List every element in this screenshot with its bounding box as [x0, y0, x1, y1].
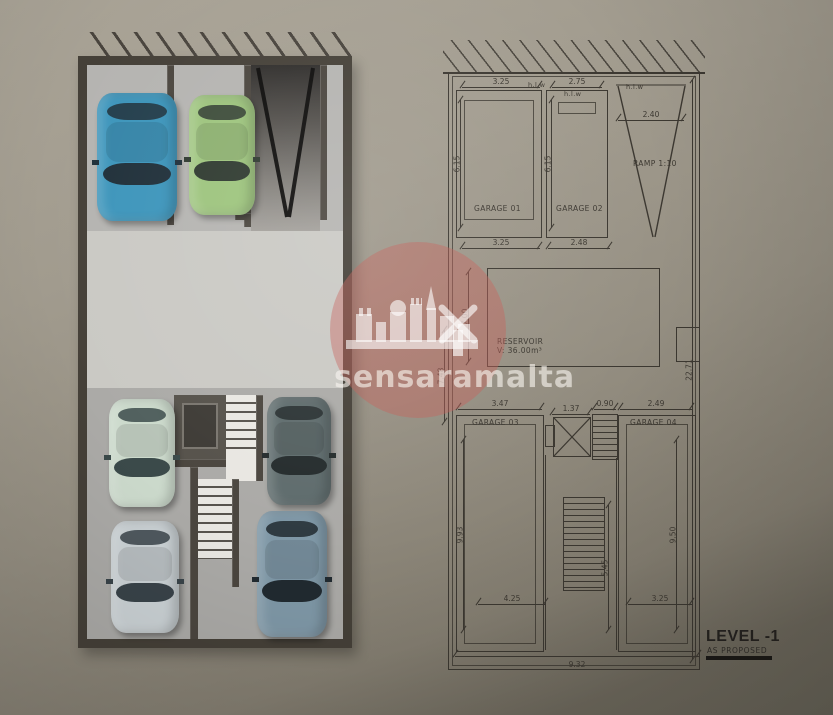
site-boundary-hatch-right	[443, 40, 705, 74]
car-mirror-right	[177, 579, 184, 584]
car-windshield	[271, 456, 326, 474]
title-underline	[706, 656, 772, 660]
garage-03-label: GARAGE 03	[472, 419, 519, 428]
dim-ramp-width: 2.40	[618, 120, 684, 121]
car-pale-green	[109, 399, 175, 507]
dim-reservoir-depth: 7.00	[468, 272, 469, 362]
car-rear-glass	[120, 530, 170, 545]
dim-bottom-left: 4.25	[478, 604, 546, 605]
car-roof	[116, 424, 168, 457]
dim-garage01-depth: 6.15	[460, 100, 461, 228]
lift-shaft-plan	[553, 417, 591, 457]
lift-cross-icon	[554, 418, 590, 456]
ramp-direction-lines	[251, 65, 320, 231]
car-windshield	[194, 161, 251, 181]
stair-upper-plan	[592, 414, 618, 460]
car-mirror-left	[262, 453, 269, 458]
lift-door-plan	[545, 425, 555, 447]
side-niche	[676, 327, 700, 362]
vehicle-ramp	[251, 65, 320, 231]
stall-outline-garage-03	[464, 424, 536, 644]
car-rear-glass	[118, 408, 167, 422]
corridor-wall-left	[545, 455, 546, 650]
car-rear-glass	[266, 521, 318, 537]
car-windshield	[103, 163, 172, 185]
car-mirror-right	[253, 157, 260, 162]
car-mirror-right	[325, 577, 332, 582]
car-windshield	[114, 458, 171, 476]
corridor-left-wall	[190, 467, 198, 639]
car-blue-gray	[257, 511, 327, 637]
car-rear-glass	[198, 105, 247, 121]
dim-garage02-depth: 6.15	[551, 100, 552, 228]
architectural-drawing-sheet: GARAGE 01 GARAGE 02 RAMP 1:10 3.25 h.l.w…	[0, 0, 833, 715]
dim-bottom-right: 3.25	[628, 604, 692, 605]
car-mirror-left	[184, 157, 191, 162]
garage-02-door-detail	[558, 102, 596, 114]
car-mirror-right	[175, 160, 182, 165]
car-windshield	[262, 580, 322, 601]
level-title: LEVEL -1	[706, 628, 780, 646]
car-mirror-left	[92, 160, 99, 165]
dim-garage04-depth: 9.50	[676, 440, 677, 630]
hlw-label-1: h.l.w	[528, 82, 545, 89]
dim-lift-width: 1.37	[552, 414, 590, 415]
car-roof	[118, 547, 171, 582]
stair-upper-treads	[226, 395, 256, 449]
dim-site-width: 9.32	[455, 656, 699, 657]
dim-garage04-width: 2.49	[620, 409, 692, 410]
hlw-label-2: h.l.w	[564, 91, 581, 98]
car-mirror-left	[106, 579, 113, 584]
dim-mid-garage02: 2.48	[548, 248, 610, 249]
car-roof	[265, 540, 320, 579]
dim-mid-garage01: 3.25	[462, 248, 540, 249]
car-dark-gray	[267, 397, 331, 505]
site-boundary-hatch-left	[88, 32, 352, 56]
car-roof	[196, 123, 248, 160]
car-mirror-right	[329, 453, 336, 458]
garage-04-label: GARAGE 04	[630, 419, 677, 428]
rendered-garage-plan	[78, 56, 352, 648]
stall-outline-garage-01	[464, 100, 534, 220]
dim-garage03-depth: 9.93	[463, 440, 464, 630]
garage-01-label: GARAGE 01	[474, 205, 521, 214]
stair-landing	[226, 449, 256, 481]
reservoir-slab-area	[87, 231, 343, 388]
stall-outline-garage-04	[626, 424, 688, 644]
stair-lower-treads	[198, 479, 232, 559]
core-bottom-wall	[174, 459, 226, 467]
lift-shaft	[174, 395, 226, 459]
car-windshield	[116, 583, 175, 602]
car-rear-glass	[107, 103, 166, 120]
car-rear-glass	[275, 406, 322, 420]
dim-reservoir-outer: 7.48	[444, 330, 445, 422]
level-status: AS PROPOSED	[707, 646, 767, 655]
car-roof	[274, 422, 324, 455]
car-roof	[106, 122, 168, 162]
ramp-side-wall	[320, 65, 327, 220]
dim-garage02-width: 2.75	[552, 87, 602, 88]
core-right-wall	[256, 395, 263, 481]
corridor-wall-right	[616, 458, 617, 650]
ramp-label: RAMP 1:10	[633, 160, 677, 169]
dim-stair-run: 5.45	[608, 505, 609, 630]
dim-stair-width: 0.90	[594, 409, 616, 410]
dim-garage03-width: 3.47	[458, 409, 542, 410]
car-mirror-left	[252, 577, 259, 582]
lift-car	[182, 403, 218, 449]
car-mirror-left	[104, 455, 111, 460]
car-green	[189, 95, 255, 215]
stair-lower-plan	[563, 497, 605, 591]
hlw-label-3: h.l.w	[626, 84, 643, 91]
car-silver	[111, 521, 179, 633]
reservoir-volume-label: V: 36.00m³	[497, 347, 542, 356]
car-blue	[97, 93, 177, 221]
garage-02-label: GARAGE 02	[556, 205, 603, 214]
stair-lower-right-wall	[232, 479, 239, 587]
car-mirror-right	[173, 455, 180, 460]
